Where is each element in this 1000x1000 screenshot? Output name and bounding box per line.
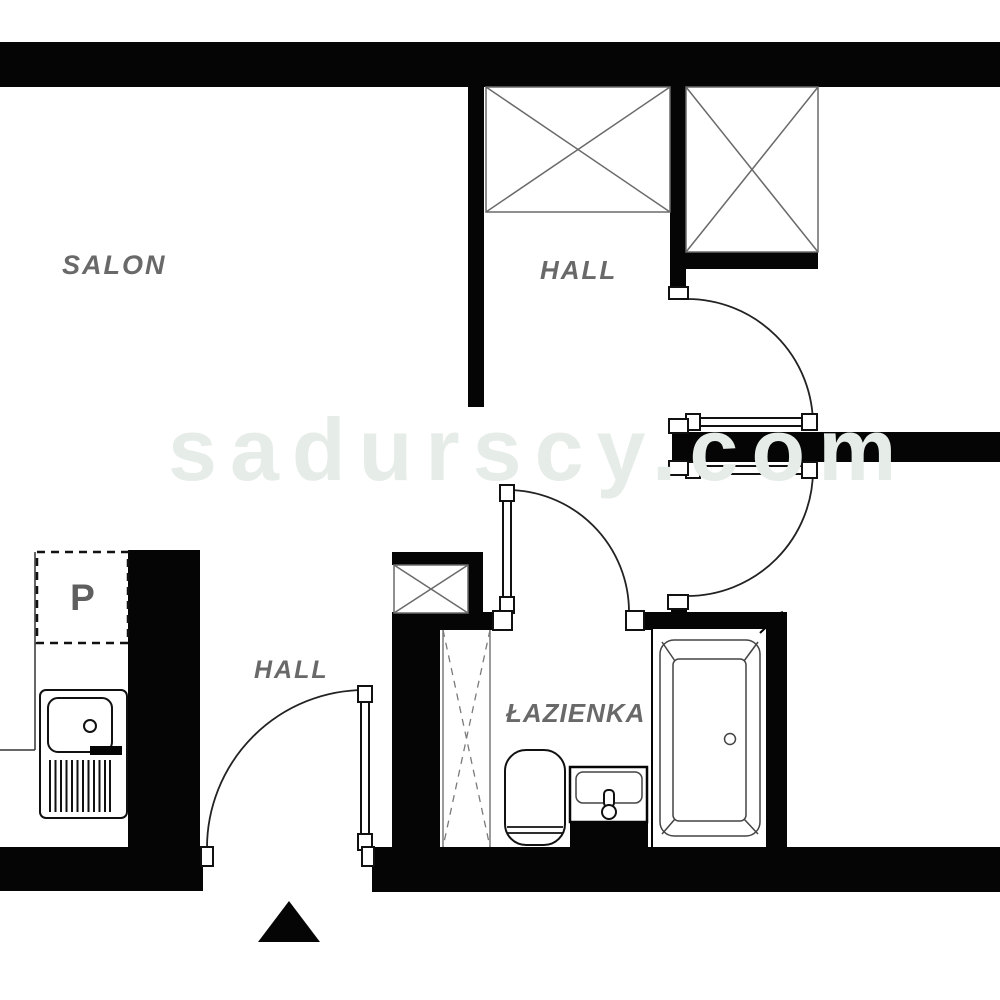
bathtub-icon: [652, 628, 767, 848]
toilet-icon: [505, 750, 565, 845]
wall-mid-left-column: [392, 620, 440, 850]
storage-dashed-box: [37, 552, 128, 643]
entrance-marker-icon: [258, 901, 320, 942]
jamb-upper-right-bottom: [669, 419, 688, 433]
wall-hall-divider: [670, 87, 686, 287]
kitchen-sink-icon: [40, 690, 127, 818]
wall-salon-divider: [468, 87, 484, 407]
wall-wardrobe-base: [686, 252, 818, 269]
wall-mid-right: [672, 432, 1000, 462]
tall-cabinet-icon: [443, 630, 490, 847]
wall-shaft-right: [468, 552, 483, 622]
wall-bathtub-right: [765, 612, 787, 847]
jamb-lower-right-top: [669, 461, 688, 475]
wall-bottom-right: [372, 847, 1000, 892]
floor-plan: SALON HALL HALL ŁAZIENKA P sadurscy.com: [0, 0, 1000, 1000]
wardrobe-hall-1-icon: [486, 87, 670, 212]
jamb-entrance-right: [362, 847, 374, 866]
door-arc-entrance: [207, 690, 365, 848]
wall-bottom-left: [0, 847, 203, 891]
wall-washbasin-block: [570, 822, 648, 857]
door-leaf-bathroom: [500, 485, 514, 613]
shaft-icon: [394, 565, 468, 613]
sink-faucet-icon: [90, 746, 122, 755]
jamb-bathroom-left: [493, 611, 512, 630]
door-arc-bathroom: [507, 490, 629, 612]
door-leaf-entrance: [358, 686, 372, 850]
door-leaf-lower-right: [686, 462, 817, 478]
door-leaf-upper-right: [686, 414, 817, 430]
washbasin-icon: [570, 767, 647, 822]
floor-plan-drawing: [0, 0, 1000, 1000]
wall-top: [0, 42, 1000, 87]
wardrobe-hall-2-icon: [686, 87, 818, 252]
jamb-entrance-left: [201, 847, 213, 866]
jamb-upper-right-top: [669, 287, 688, 299]
wall-kitchen-column: [128, 550, 200, 850]
door-arc-lower-right: [687, 470, 813, 596]
jamb-bathroom-right: [626, 611, 644, 630]
jamb-lower-right-bottom: [668, 595, 688, 609]
door-arc-upper-right: [687, 299, 813, 425]
